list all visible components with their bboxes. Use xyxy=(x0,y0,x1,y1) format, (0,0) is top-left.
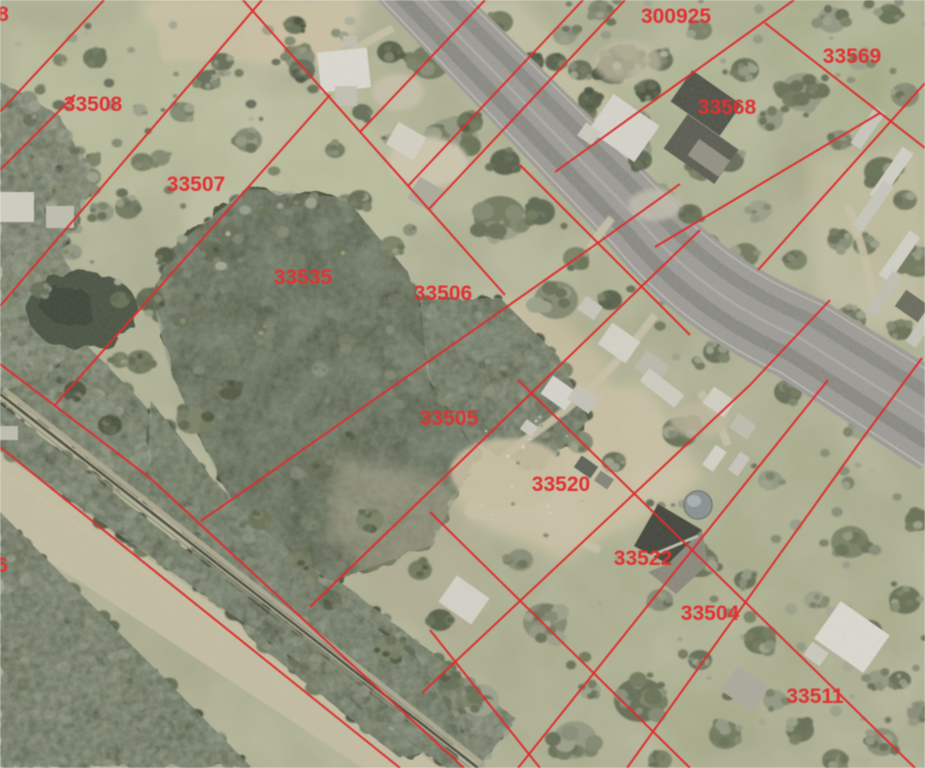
svg-text:33535: 33535 xyxy=(274,266,333,289)
svg-text:33505: 33505 xyxy=(420,407,479,430)
svg-text:33520: 33520 xyxy=(532,473,590,496)
svg-text:300925: 300925 xyxy=(641,5,711,28)
svg-text:33569: 33569 xyxy=(823,45,881,68)
svg-text:33522: 33522 xyxy=(614,547,672,570)
svg-text:33506: 33506 xyxy=(414,282,472,305)
svg-text:33568: 33568 xyxy=(698,96,757,119)
svg-text:33504: 33504 xyxy=(681,602,740,625)
svg-text:33508: 33508 xyxy=(64,93,123,116)
svg-text:8: 8 xyxy=(0,3,9,26)
svg-text:6: 6 xyxy=(0,554,8,577)
svg-text:33507: 33507 xyxy=(167,173,225,196)
svg-text:33511: 33511 xyxy=(786,685,844,708)
